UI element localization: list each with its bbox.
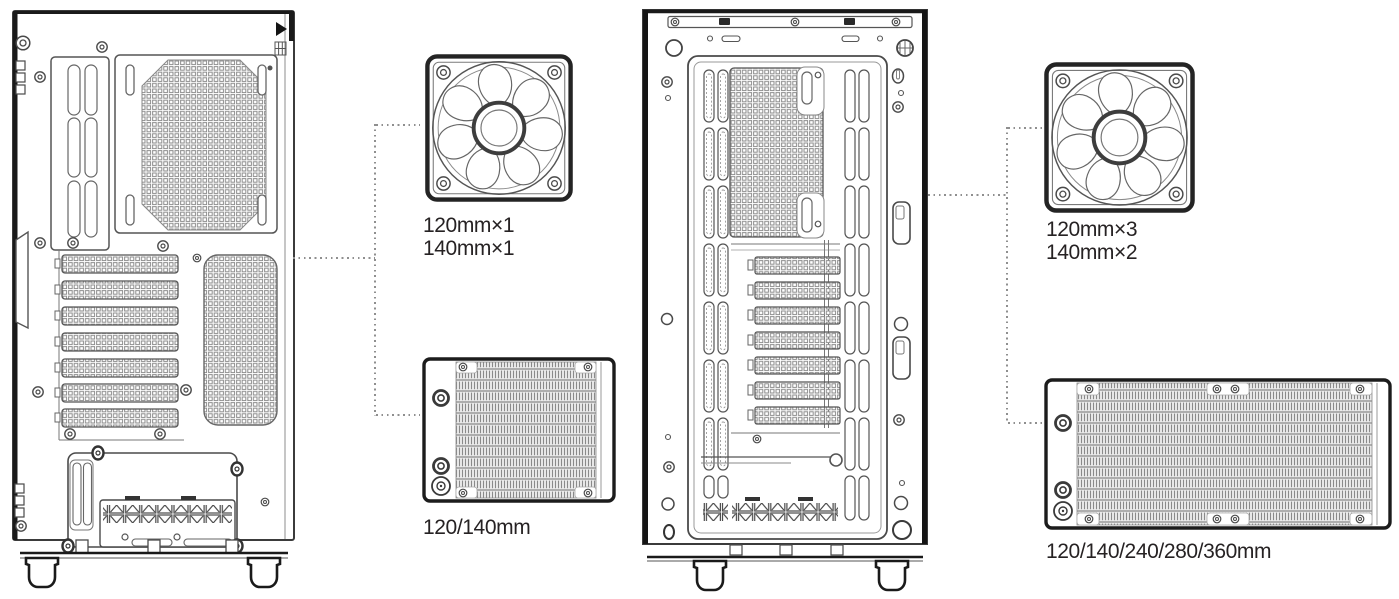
thumbscrew [666, 40, 682, 56]
rear-fan-capacity-line1: 120mm×1 [423, 214, 514, 237]
front-radiator-size-label: 120/140/240/280/360mm [1046, 540, 1271, 563]
rear-radiator-illustration [422, 357, 616, 503]
connector-front-stem [928, 194, 1008, 196]
front-fan-capacity-line1: 120mm×3 [1046, 218, 1137, 241]
psu-mount-area [63, 447, 243, 553]
connector-rear-to-radiator [376, 414, 420, 416]
tray-mesh-panel [730, 67, 840, 250]
case-base [20, 540, 288, 558]
connector-rear-stem [293, 257, 375, 259]
drive-latch [893, 337, 910, 379]
side-bracket [16, 232, 28, 328]
case-base [647, 545, 923, 561]
front-fan-capacity-line2: 140mm×2 [1046, 241, 1137, 264]
connector-rear-spine [374, 124, 376, 416]
connector-rear-to-fan [376, 124, 420, 126]
front-fan-illustration [1043, 61, 1196, 214]
psu-side-tabs [15, 484, 24, 517]
rear-mesh-panel [204, 255, 277, 425]
connector-front-to-radiator [1008, 422, 1042, 424]
drive-latch [893, 202, 910, 244]
front-radiator-illustration [1044, 378, 1392, 530]
connector-front-spine [1006, 127, 1008, 424]
case-foot [876, 561, 908, 590]
case-front-view-illustration [641, 8, 929, 594]
rear-fan-mount [115, 55, 277, 233]
radiator-core [1077, 383, 1372, 525]
fan-radiator-support-diagram: 120mm×1 140mm×1 120/140mm 120mm×3 140mm×… [0, 0, 1399, 599]
case-foot [694, 561, 726, 590]
rear-fan-capacity-line2: 140mm×1 [423, 237, 514, 260]
rear-vent-slots [51, 57, 109, 250]
rear-fan-capacity-label: 120mm×1 140mm×1 [423, 214, 514, 260]
rear-radiator-size-label: 120/140mm [423, 516, 530, 539]
rear-fan-illustration [424, 53, 574, 203]
rear-io-tabs [16, 61, 25, 94]
front-fan-capacity-label: 120mm×3 140mm×2 [1046, 218, 1137, 264]
case-rear-view-illustration [12, 10, 295, 590]
side-panel-edge-right [922, 10, 927, 544]
side-panel-edge-left [643, 10, 648, 544]
radiator-core [456, 362, 596, 498]
vent-grommet [897, 40, 913, 56]
case-foot [248, 558, 280, 587]
connector-front-to-fan [1008, 127, 1042, 129]
case-foot [26, 558, 58, 587]
